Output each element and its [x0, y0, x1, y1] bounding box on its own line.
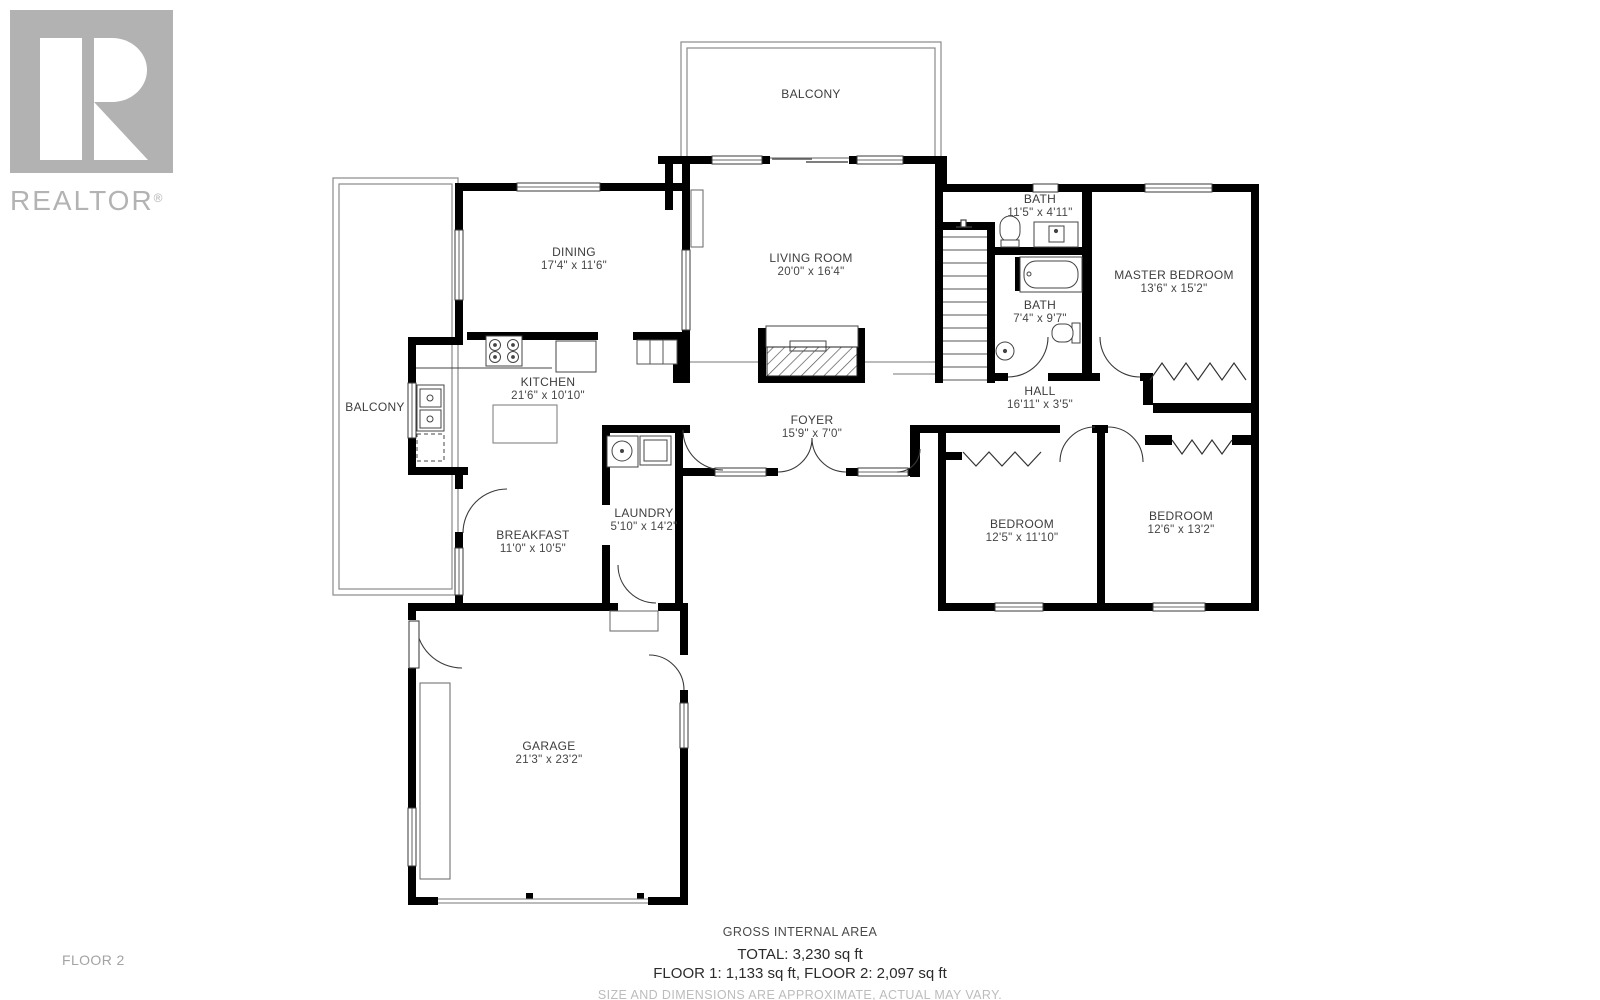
registered-mark: ®: [154, 191, 163, 205]
counter-icon: [556, 341, 596, 372]
garage-step-icon: [610, 611, 658, 631]
room-label-dining: DINING17'4" x 11'6": [541, 245, 607, 273]
vanity-sink-icon: [1034, 222, 1078, 247]
round-sink-icon: [996, 342, 1014, 360]
gross-area-heading: GROSS INTERNAL AREA: [0, 925, 1600, 939]
island-icon: [493, 405, 557, 443]
stove-icon: [486, 336, 522, 366]
room-label-foyer: FOYER15'9" x 7'0": [782, 413, 842, 441]
fireplace-icon: [758, 326, 865, 383]
toilet-icon-2: [1052, 323, 1080, 343]
bathtub-icon: [1020, 257, 1082, 292]
toilet-icon: [1000, 216, 1020, 247]
room-label-bath-top: BATH11'5" x 4'11": [1007, 192, 1072, 220]
floor-label: FLOOR 2: [62, 952, 125, 968]
sliding-door-icon: [772, 159, 848, 162]
kitchen-sink-icon: [417, 385, 444, 431]
realtor-r-icon: [10, 10, 173, 173]
room-label-bath-mid: BATH7'4" x 9'7": [1013, 298, 1067, 326]
room-label-bedroom-2: BEDROOM12'6" x 13'2": [1148, 509, 1215, 537]
mini-steps-icon: [637, 340, 677, 364]
dryer-icon: [640, 436, 671, 465]
room-label-master-bedroom: MASTER BEDROOM13'6" x 15'2": [1114, 268, 1234, 296]
area-summary: GROSS INTERNAL AREA TOTAL: 3,230 sq ft F…: [0, 925, 1600, 1000]
floor-areas: FLOOR 1: 1,133 sq ft, FLOOR 2: 2,097 sq …: [0, 965, 1600, 982]
realtor-logo: REALTOR®: [10, 10, 210, 216]
dishwasher-icon: [417, 434, 444, 461]
room-label-laundry: LAUNDRY5'10" x 14'2": [611, 506, 678, 534]
room-label-living-room: LIVING ROOM20'0" x 16'4": [769, 251, 852, 279]
workbench-icon: [420, 683, 450, 879]
staircase-icon: [943, 237, 987, 380]
room-label-balcony-left: BALCONY: [345, 400, 404, 414]
floor-plan-page: REALTOR® BALCONY DINING17'4" x 11'6" LIV…: [0, 0, 1600, 1000]
room-label-breakfast: BREAKFAST11'0" x 10'5": [496, 528, 569, 556]
total-area: TOTAL: 3,230 sq ft: [0, 946, 1600, 963]
realtor-wordmark: REALTOR®: [10, 183, 210, 216]
room-label-balcony-top: BALCONY: [781, 87, 840, 101]
room-label-bedroom-1: BEDROOM12'5" x 11'10": [986, 517, 1059, 545]
disclaimer: SIZE AND DIMENSIONS ARE APPROXIMATE, ACT…: [0, 988, 1600, 1000]
floor-plan-drawing: [0, 0, 1600, 1000]
washer-icon: [607, 436, 638, 467]
room-label-hall: HALL16'11" x 3'5": [1007, 384, 1073, 412]
room-label-garage: GARAGE21'3" x 23'2": [516, 739, 583, 767]
room-label-kitchen: KITCHEN21'6" x 10'10": [511, 375, 585, 403]
laundry-fixtures: [607, 436, 671, 467]
